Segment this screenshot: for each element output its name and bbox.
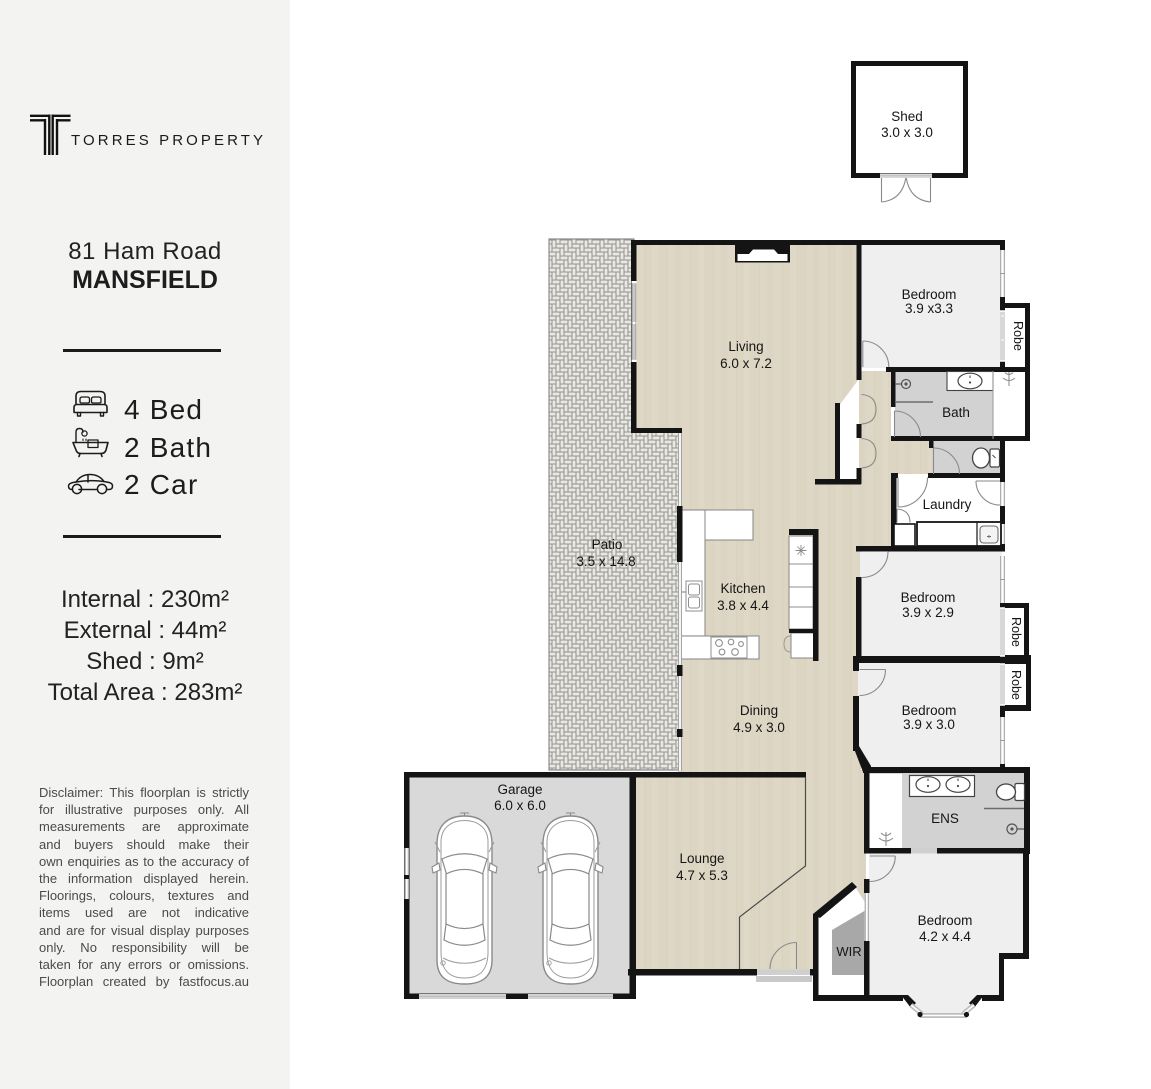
svg-text:Laundry: Laundry [923,497,972,512]
svg-text:Garage: Garage [497,782,542,797]
svg-text:3.0 x 3.0: 3.0 x 3.0 [881,125,933,140]
svg-text:Bedroom: Bedroom [901,590,956,605]
svg-text:Bedroom: Bedroom [918,913,973,928]
svg-text:Lounge: Lounge [679,851,724,866]
svg-text:Living: Living [728,339,763,354]
svg-text:3.8 x 4.4: 3.8 x 4.4 [717,598,769,613]
svg-text:ENS: ENS [931,811,959,826]
svg-text:4.2 x 4.4: 4.2 x 4.4 [919,929,971,944]
svg-text:Bedroom: Bedroom [902,287,957,302]
svg-text:Patio: Patio [592,537,623,552]
svg-text:WIR: WIR [836,944,861,959]
svg-text:Robe: Robe [1009,617,1023,647]
svg-text:Shed: Shed [891,109,923,124]
svg-text:3.5 x 14.8: 3.5 x 14.8 [576,554,635,569]
svg-text:6.0 x 6.0: 6.0 x 6.0 [494,798,546,813]
svg-text:6.0 x 7.2: 6.0 x 7.2 [720,356,772,371]
svg-text:3.9 x 3.0: 3.9 x 3.0 [903,717,955,732]
svg-text:Bedroom: Bedroom [902,703,957,718]
svg-text:Robe: Robe [1009,670,1023,700]
svg-text:3.9 x3.3: 3.9 x3.3 [905,301,953,316]
svg-text:Robe: Robe [1011,321,1025,351]
svg-text:Dining: Dining [740,703,778,718]
svg-text:4.7 x 5.3: 4.7 x 5.3 [676,868,728,883]
svg-text:4.9 x 3.0: 4.9 x 3.0 [733,720,785,735]
svg-text:Kitchen: Kitchen [720,581,765,596]
svg-text:3.9 x 2.9: 3.9 x 2.9 [902,605,954,620]
svg-text:Bath: Bath [942,405,970,420]
